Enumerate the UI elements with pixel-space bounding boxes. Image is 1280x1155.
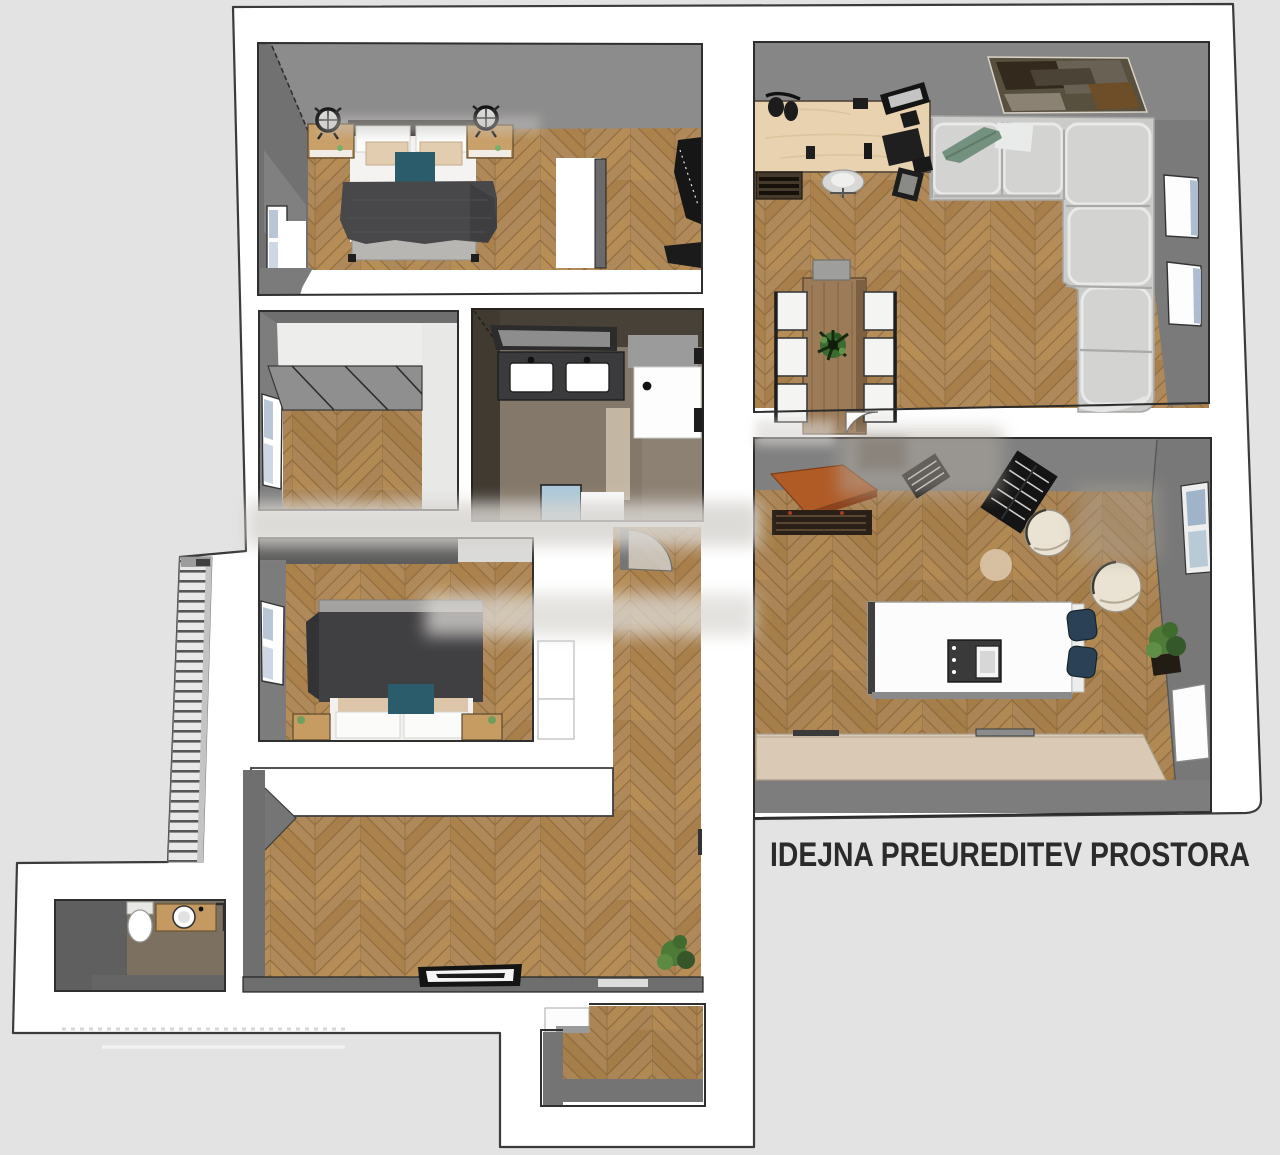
svg-text:IDEJNA PREUREDITEV PROSTORA: IDEJNA PREUREDITEV PROSTORA bbox=[770, 836, 1250, 874]
